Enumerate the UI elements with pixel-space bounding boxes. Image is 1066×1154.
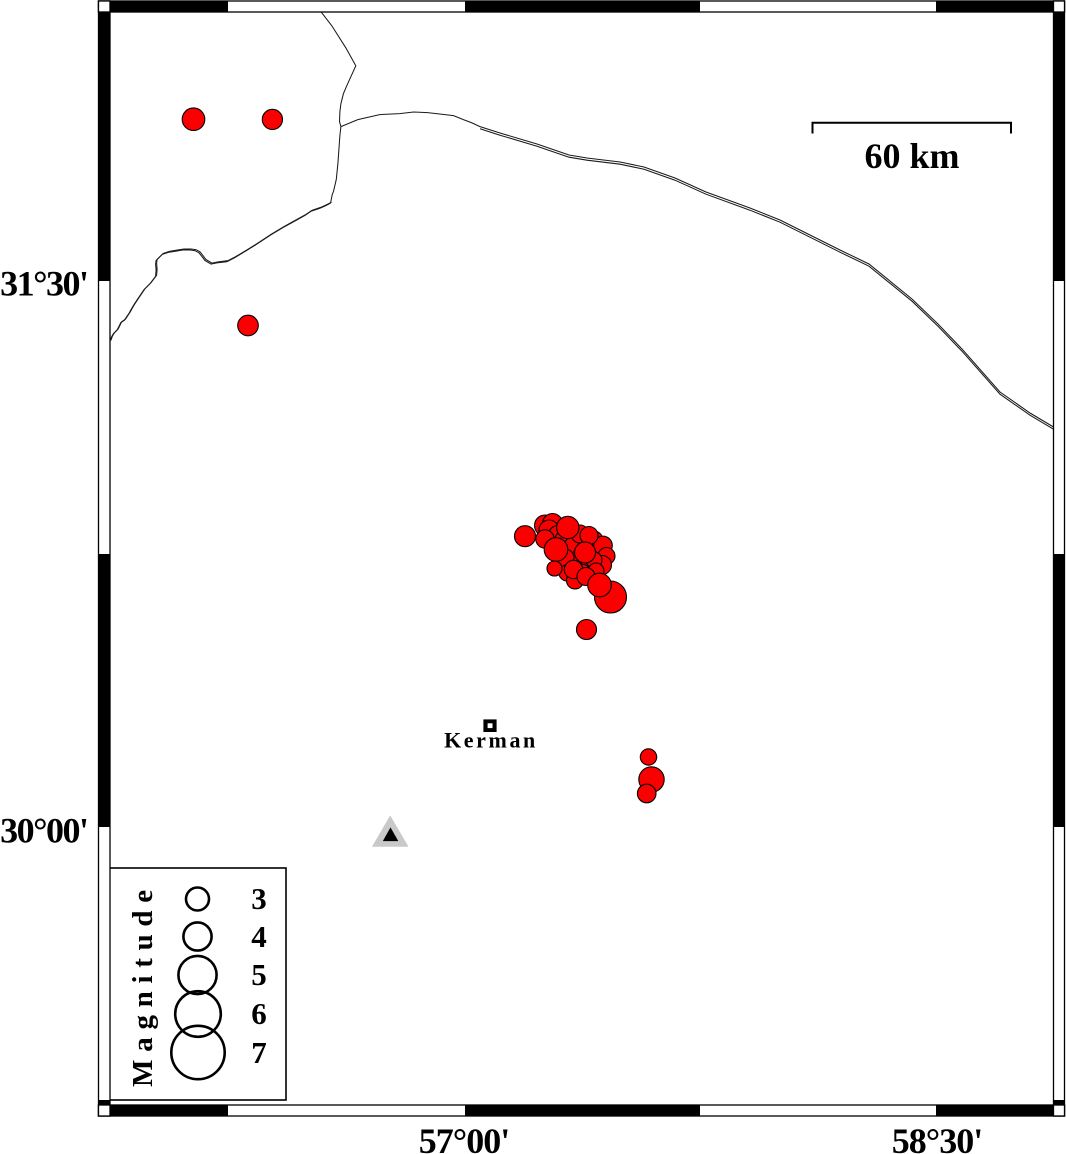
svg-text:7: 7: [251, 1035, 267, 1070]
svg-text:60 km: 60 km: [864, 136, 959, 176]
svg-text:Magnitude: Magnitude: [127, 882, 159, 1087]
svg-text:30°00': 30°00': [0, 811, 87, 851]
svg-text:Kerman: Kerman: [444, 728, 538, 753]
svg-text:6: 6: [251, 996, 267, 1031]
svg-text:58°30': 58°30': [892, 1121, 982, 1154]
svg-text:4: 4: [251, 919, 267, 954]
svg-text:31°30': 31°30': [0, 264, 87, 304]
svg-text:57°00': 57°00': [419, 1121, 509, 1154]
svg-text:5: 5: [251, 957, 267, 992]
svg-text:3: 3: [251, 881, 267, 916]
